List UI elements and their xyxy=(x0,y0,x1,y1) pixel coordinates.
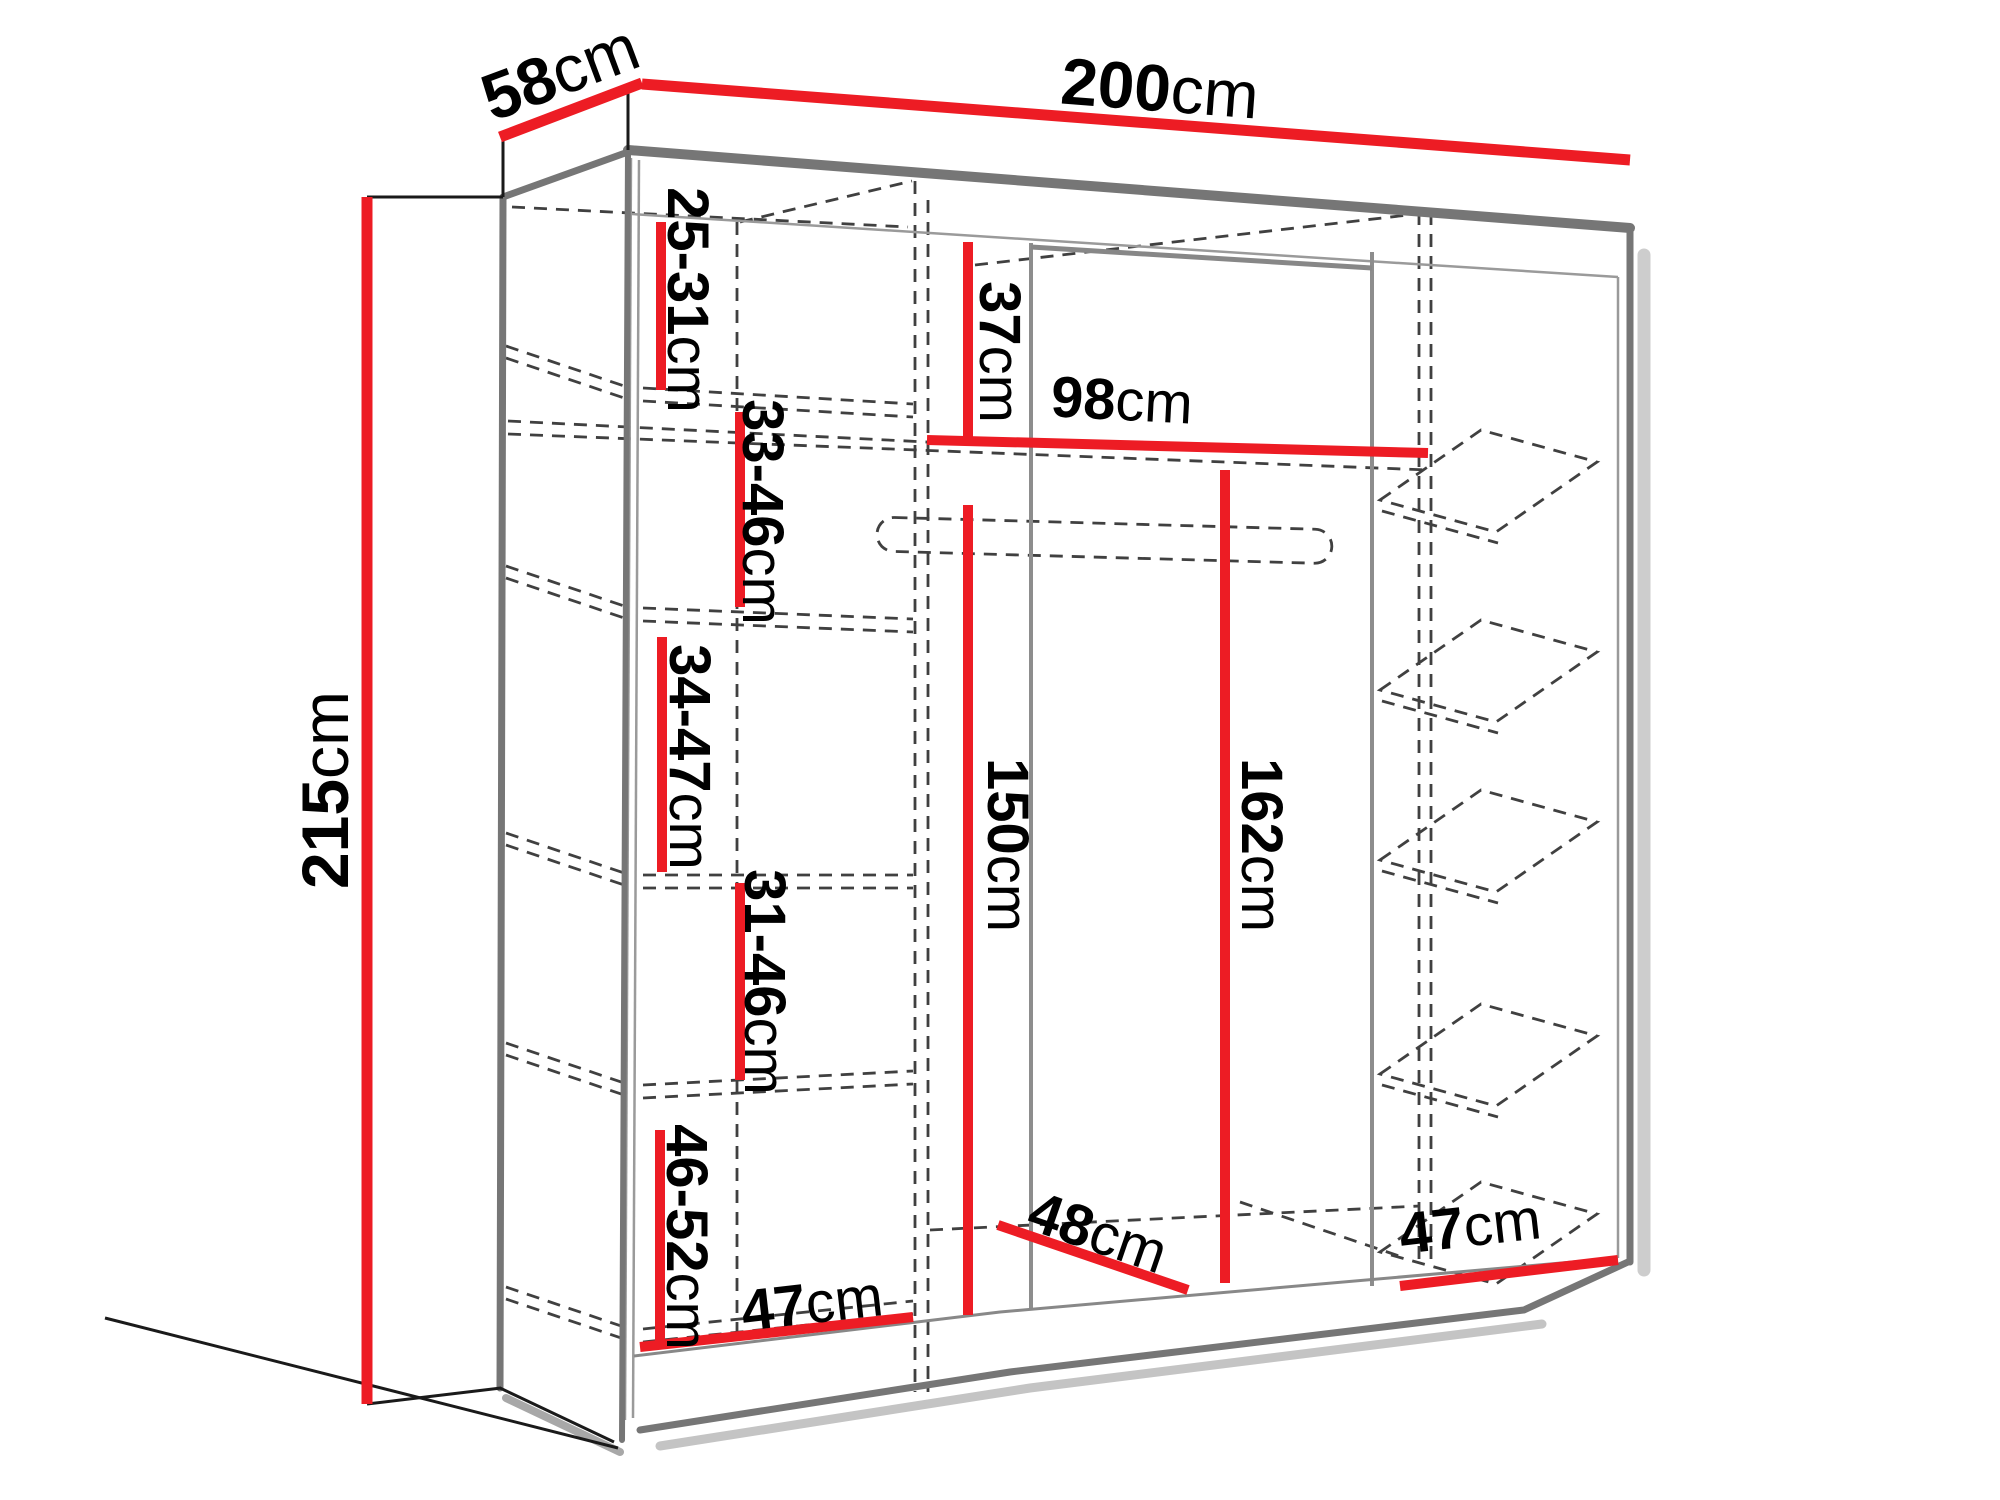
label-shelf-34-47: 34-47cm xyxy=(658,644,723,870)
label-shelf-33-46: 33-46cm xyxy=(731,399,796,625)
label-hang-150: 150cm xyxy=(976,758,1041,932)
side-panel-face xyxy=(500,152,628,1442)
label-shelf-46-52: 46-52cm xyxy=(655,1124,720,1350)
label-width-200: 200cm xyxy=(1058,44,1261,133)
label-hang-162: 162cm xyxy=(1230,758,1295,932)
label-height-215: 215cm xyxy=(288,691,362,889)
diagram-canvas: 58cm 200cm 215cm 25-31cm 33-46cm 34-47cm… xyxy=(0,0,2000,1500)
label-shelf-31-46: 31-46cm xyxy=(733,869,798,1095)
label-shelf-25-31: 25-31cm xyxy=(656,187,721,413)
label-top-37: 37cm xyxy=(968,281,1033,423)
wardrobe-dimension-diagram: 58cm 200cm 215cm 25-31cm 33-46cm 34-47cm… xyxy=(0,0,2000,1500)
side-back-edge xyxy=(500,197,503,1388)
label-shelf-98: 98cm xyxy=(1049,364,1194,436)
